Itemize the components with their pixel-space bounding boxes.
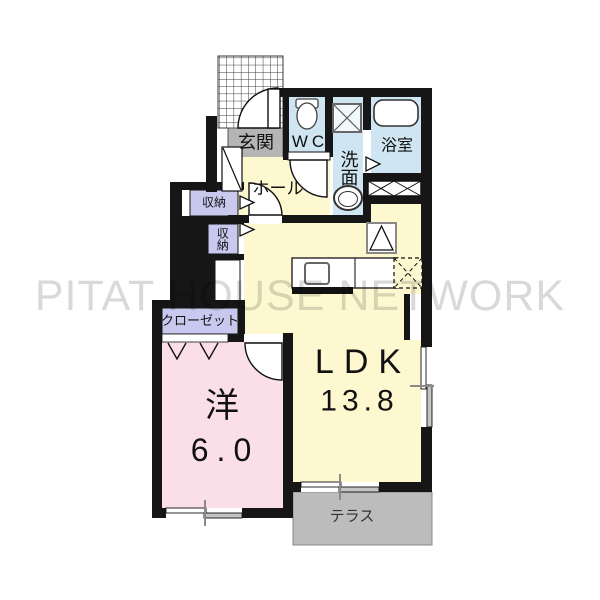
ldk-label: LDK (305, 345, 411, 381)
toilet-bowl-icon (297, 103, 317, 129)
closet-door-opening (162, 334, 228, 342)
closet-label: クローゼット (161, 314, 239, 328)
kitchen-sink-icon (305, 263, 329, 284)
toilet-door-leaf (288, 152, 330, 160)
floor-plan: 玄関 WC 洗面 浴室 ホール 収納 収納 クローゼット 洋 6.0 LDK 1… (0, 0, 600, 600)
storage-upper-label: 収納 (202, 197, 226, 210)
counter-base (292, 287, 353, 294)
pipe-space (215, 260, 240, 304)
hall-label: ホール (253, 180, 304, 198)
storage-lower-label: 収納 (216, 227, 229, 251)
refrigerator-space-icon (394, 258, 422, 288)
western-door-opening (244, 334, 282, 342)
hall-door-opening (249, 215, 282, 224)
hatch-box-icon (368, 181, 421, 196)
ldk-size: 13.8 (315, 385, 398, 417)
bathtub-icon (374, 100, 418, 126)
western-room-size: 6.0 (183, 434, 259, 468)
entrance-label: 玄関 (238, 134, 274, 153)
water-heater-triangle-icon (367, 223, 396, 253)
terrace-label: テラス (330, 509, 375, 525)
wall-notch (410, 294, 421, 340)
toilet-label: WC (288, 133, 328, 151)
western-room-label: 洋 (205, 389, 239, 425)
ldk-floor-nook (371, 204, 421, 223)
bathroom-label: 浴室 (381, 139, 413, 156)
entrance-door-leaf (268, 89, 280, 128)
washroom-label: 洗面 (339, 150, 358, 186)
floor-plan-drawing (0, 0, 600, 600)
